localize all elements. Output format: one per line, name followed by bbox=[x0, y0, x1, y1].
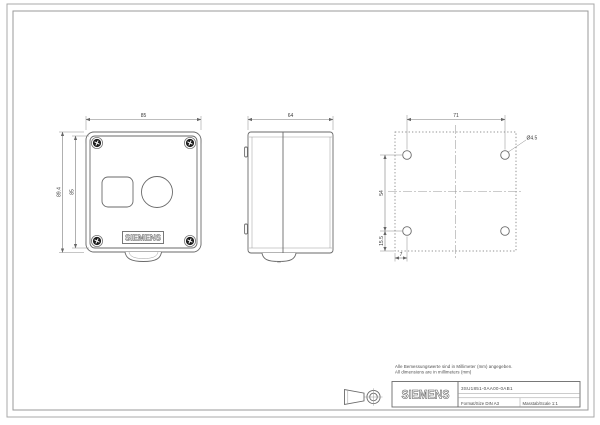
front-height-outer-dim: 89.4 bbox=[57, 187, 63, 197]
cable-boss bbox=[125, 252, 162, 262]
front-height-face-dim: 85 bbox=[70, 189, 76, 195]
mounting-hole bbox=[403, 151, 412, 160]
screw-icon bbox=[91, 137, 102, 148]
screw-icon bbox=[184, 137, 195, 148]
note-line-1: Alle Bemessungswerte sind in Millimeter … bbox=[395, 364, 513, 369]
side-screw-head bbox=[245, 224, 248, 234]
side-screw-head bbox=[245, 147, 248, 157]
side-body bbox=[248, 132, 333, 253]
front-width-dim: 85 bbox=[141, 113, 147, 119]
screw-icon bbox=[184, 235, 195, 246]
title-block: Alle Bemessungswerte sind in Millimeter … bbox=[345, 364, 581, 407]
screw-icon bbox=[91, 235, 102, 246]
drill-pattern-view: 71 Ø4.5 54 15.5 7 bbox=[379, 113, 538, 261]
offset-left-dim: 7 bbox=[400, 252, 403, 258]
note-line-2: All dimensions are in millimeters (mm) bbox=[395, 370, 472, 375]
part-number: 3SU1851-0AA00-0AB1 bbox=[461, 386, 513, 391]
front-view: SIEMENS 85 89.4 85 bbox=[57, 113, 202, 261]
format-label: Format/Size DIN A3 bbox=[461, 401, 500, 406]
cable-boss-side bbox=[262, 253, 296, 262]
mounting-hole bbox=[501, 227, 510, 236]
hole-diameter-label: Ø4.5 bbox=[527, 136, 538, 142]
side-depth-dim: 64 bbox=[288, 113, 294, 119]
offset-bottom-dim: 15.5 bbox=[379, 236, 385, 246]
scale-label: Masstab/Scale 1:1 bbox=[523, 401, 559, 406]
drawing-sheet: SIEMENS 85 89.4 85 64 bbox=[0, 0, 600, 425]
nameplate-text: SIEMENS bbox=[125, 234, 162, 243]
projection-symbol-icon bbox=[345, 388, 383, 405]
hole-pitch-y-dim: 54 bbox=[379, 190, 385, 196]
technical-drawing: SIEMENS 85 89.4 85 64 bbox=[0, 0, 600, 425]
hole-pitch-x-dim: 71 bbox=[453, 113, 459, 119]
brand-logo: SIEMENS bbox=[402, 390, 450, 402]
side-view: 64 bbox=[245, 113, 333, 263]
mounting-hole bbox=[403, 227, 412, 236]
